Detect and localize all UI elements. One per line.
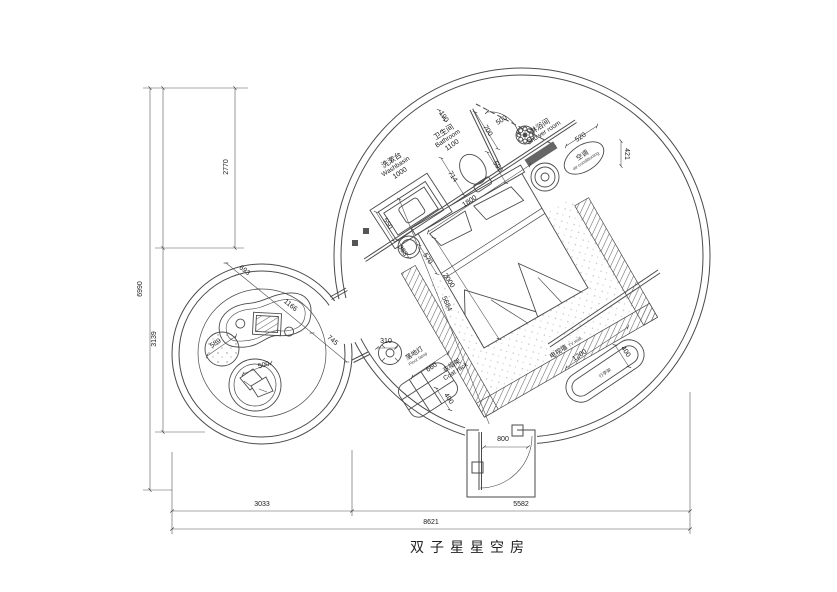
stool: [235, 318, 246, 329]
left-room-inner-wall: [179, 271, 345, 437]
floor-plan-page: 卫生间 Bathroom 1100 洗漱台 Washbasin 1000 淋浴间…: [0, 0, 837, 592]
door-jamb: [352, 240, 358, 246]
shower-head-icon: [516, 126, 534, 144]
floor-plan-drawing: [0, 0, 837, 592]
floor-lamp-symbol: [379, 342, 402, 365]
left-room-furnishings: [198, 289, 326, 417]
air-conditioner-unit: [558, 135, 609, 181]
laptop: [252, 312, 281, 335]
shower-door-arc: [487, 112, 519, 134]
entry-vestibule: [465, 424, 537, 498]
door-jamb: [363, 228, 369, 234]
passage-opening: [323, 298, 369, 344]
shower-partition-wall: [470, 110, 498, 168]
round-chair: [229, 359, 281, 411]
floor-drain: [531, 163, 559, 191]
coat-rack-symbol: [395, 359, 461, 420]
